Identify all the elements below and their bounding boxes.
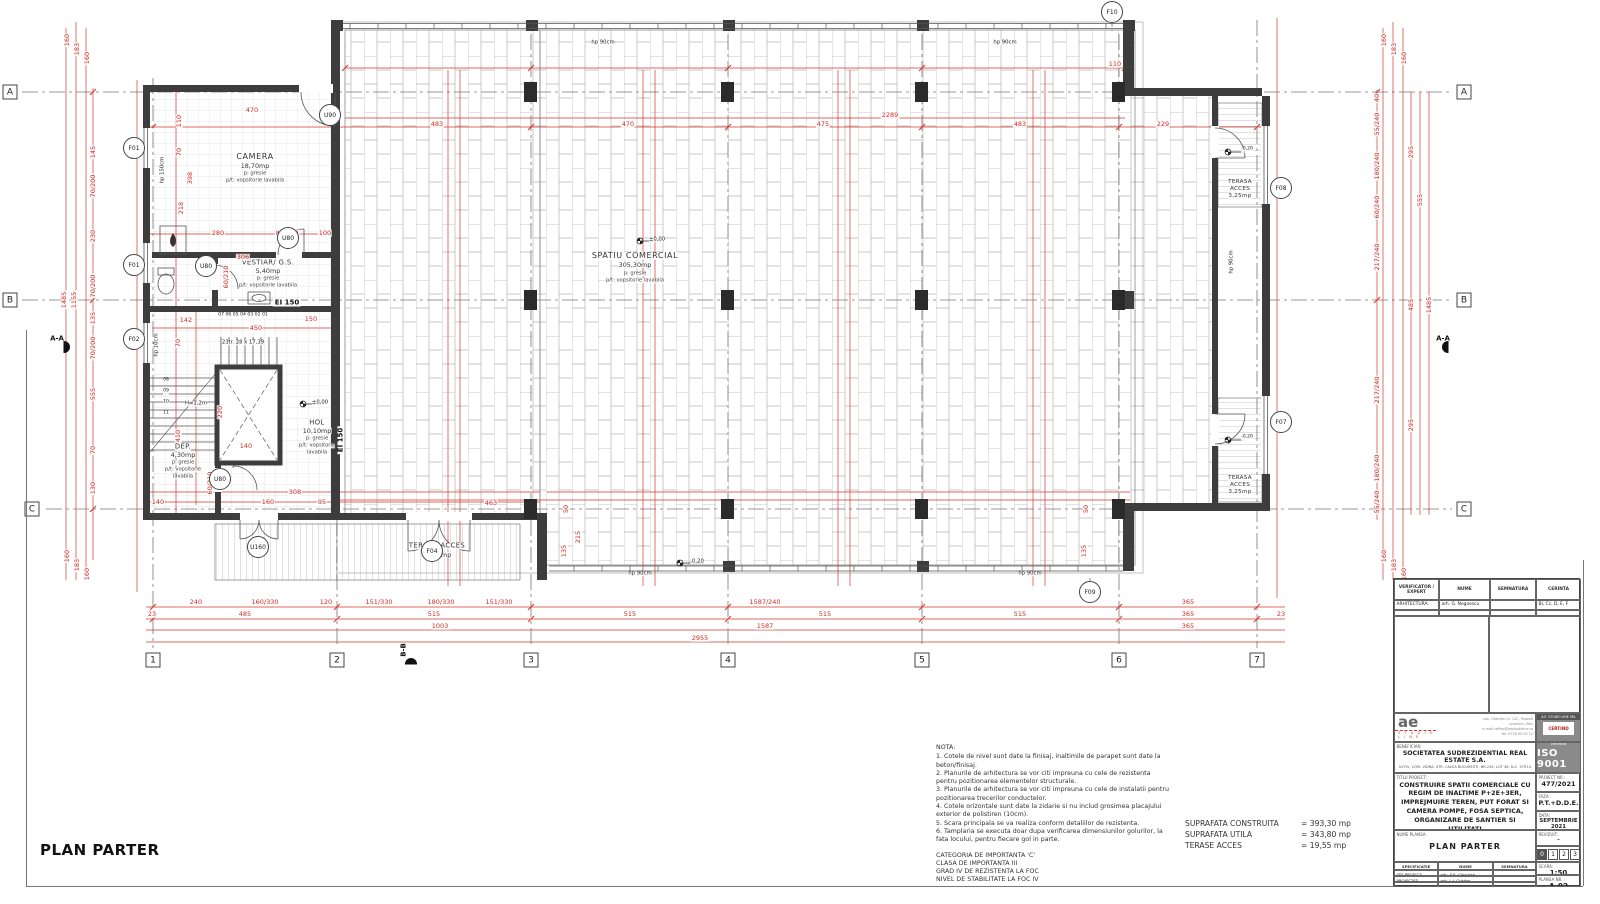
- plan-title: PLAN PARTER: [40, 841, 160, 859]
- areas-block: SUPRAFATA CONSTRUITA= 393,30 mpSUPRAFATA…: [1185, 818, 1351, 851]
- notes-title: NOTA:: [936, 744, 1173, 752]
- tb-blank-right: [1489, 616, 1581, 713]
- sheet-frame-bottom: [26, 886, 1583, 887]
- certind-emblem: CERTIND: [1543, 722, 1574, 735]
- drawing-sheet: CAMERA18,70mpp: gresiep/t: vopsitorie la…: [0, 0, 1600, 904]
- iso-9001: ISO 9001: [1537, 747, 1580, 772]
- tb-revision-boxes: 0123: [1536, 846, 1581, 862]
- tb-plansa-nr: PLANSA NR. : A-02: [1536, 875, 1581, 887]
- notes-importance: CATEGORIA DE IMPORTANTA 'C'CLASA DE IMPO…: [936, 852, 1173, 885]
- tb-cert-badge: A.E. STUDIO LINE SRL CERTIND: [1536, 713, 1581, 742]
- floor-finishes: [150, 22, 1262, 580]
- sheet-frame-right: [1583, 560, 1584, 886]
- tb-faza: FAZA: P.T.+D.D.E.: [1536, 792, 1581, 811]
- tb-blank-left: [1394, 616, 1489, 713]
- cert-firm: A.E. STUDIO LINE SRL: [1537, 714, 1580, 720]
- tb-revizuit: REVIZUIT: -: [1536, 830, 1581, 846]
- tb-arhitectura-cerinta: BI, Cc, D, E, F: [1536, 600, 1581, 610]
- title-block: VERIFICATOR / EXPERT NUME SEMNATURA CERI…: [1393, 578, 1580, 886]
- tb-titlu-cell: TITLU PROIECT: CONSTRUIRE SPATII COMERCI…: [1394, 773, 1536, 830]
- tb-beneficiar-cell: BENEFICIAR: SOCIETATEA SUDREZIDENTIAL RE…: [1394, 742, 1536, 773]
- tb-header-nume: NUME: [1439, 579, 1490, 600]
- studio-logo-sub: S T U D I O L I N E: [1395, 730, 1436, 739]
- tb-header-verificator: VERIFICATOR / EXPERT: [1394, 579, 1439, 600]
- tb-proiect-nr: PROIECT NR.: 477/2021: [1536, 773, 1581, 792]
- tb-arhitectura-signature: [1490, 600, 1536, 610]
- tb-verificat-name: arh. A.E. Ciocirlan: [1438, 882, 1493, 887]
- notes-block: NOTA: 1. Cotele de nivel sunt date la fi…: [936, 744, 1173, 885]
- notes-lines: 1. Cotele de nivel sunt date la finisaj,…: [936, 753, 1173, 844]
- tb-verificat-label: VERIFICAT:: [1394, 882, 1438, 887]
- beneficiar-address: ILFOV, COM. VIDRA, STR. CALEA BUCURESTI,…: [1395, 764, 1535, 769]
- tb-header-semnatura: SEMNATURA: [1490, 579, 1536, 600]
- tb-arhitectura-name: arh. G. Negoescu: [1439, 600, 1490, 610]
- sheet-name: PLAN PARTER: [1395, 837, 1535, 851]
- sheet-frame-left: [26, 330, 27, 886]
- tb-arhitectura-label: ARHITECTURA:: [1394, 600, 1439, 610]
- tb-data: DATA: SEPTEMBRIE 2021: [1536, 811, 1581, 830]
- tb-nume-plansa: NUME PLANSA: PLAN PARTER: [1394, 830, 1536, 862]
- beneficiar-name: SOCIETATEA SUDREZIDENTIAL REAL ESTATE S.…: [1395, 749, 1535, 764]
- elevator-shaft: [217, 367, 280, 463]
- project-title: CONSTRUIRE SPATII COMERCIALE CU REGIM DE…: [1395, 780, 1535, 831]
- tb-logo-cell: ae S T U D I O L I N E sos. Oltenitei nr…: [1394, 713, 1536, 742]
- tb-iso-cell: Sistem de management certificat ISO 9001: [1536, 742, 1581, 773]
- tb-header-cerinta: CERINTA: [1536, 579, 1581, 600]
- tb-spec-header: SPECIFICATIE: [1394, 862, 1438, 870]
- tb-scara: SCARA: 1:50: [1536, 862, 1581, 875]
- studio-address: sos. Oltenitei nr. 14C, Popesti Leordeni…: [1482, 717, 1533, 737]
- floor-plan-geometry: [0, 0, 1600, 904]
